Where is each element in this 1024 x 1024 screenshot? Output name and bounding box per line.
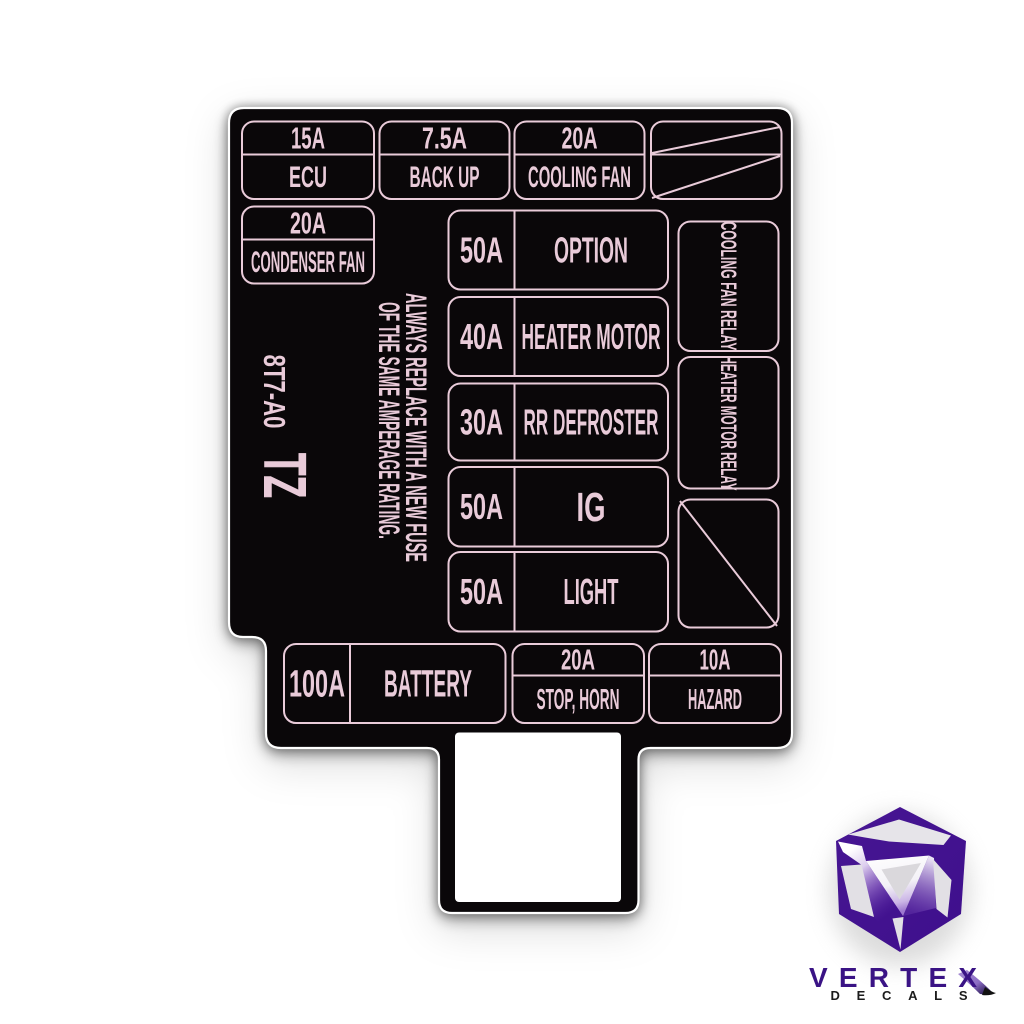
svg-text:20A: 20A <box>562 121 598 156</box>
svg-text:10A: 10A <box>700 645 731 677</box>
svg-text:BACK UP: BACK UP <box>410 161 480 194</box>
svg-text:LIGHT: LIGHT <box>564 571 619 612</box>
svg-text:8T7-A0: 8T7-A0 <box>257 355 292 429</box>
svg-text:15A: 15A <box>291 121 325 156</box>
svg-text:OPTION: OPTION <box>554 229 628 270</box>
svg-text:BATTERY: BATTERY <box>384 664 472 706</box>
svg-text:7.5A: 7.5A <box>422 121 467 156</box>
svg-text:100A: 100A <box>289 664 345 706</box>
svg-text:OF THE SAME AMPERAGE RATING.: OF THE SAME AMPERAGE RATING. <box>372 302 405 539</box>
svg-text:20A: 20A <box>561 645 595 677</box>
svg-text:STOP, HORN: STOP, HORN <box>537 684 620 716</box>
svg-text:RR DEFROSTER: RR DEFROSTER <box>524 401 659 442</box>
svg-text:IG: IG <box>577 484 606 530</box>
svg-text:HAZARD: HAZARD <box>688 684 742 716</box>
svg-text:ECU: ECU <box>289 161 327 194</box>
svg-text:20A: 20A <box>290 206 326 241</box>
svg-text:HEATER MOTOR RELAY: HEATER MOTOR RELAY <box>716 356 741 491</box>
svg-text:40A: 40A <box>460 316 503 357</box>
svg-text:TZ: TZ <box>252 453 318 498</box>
svg-text:CONDENSER FAN: CONDENSER FAN <box>251 246 365 279</box>
svg-text:50A: 50A <box>460 229 503 270</box>
svg-text:50A: 50A <box>460 571 503 612</box>
svg-text:COOLING FAN: COOLING FAN <box>528 161 631 194</box>
svg-text:50A: 50A <box>460 486 503 527</box>
svg-text:HEATER MOTOR: HEATER MOTOR <box>522 316 661 357</box>
svg-text:COOLING FAN RELAY: COOLING FAN RELAY <box>716 222 741 351</box>
svg-text:30A: 30A <box>460 401 503 442</box>
